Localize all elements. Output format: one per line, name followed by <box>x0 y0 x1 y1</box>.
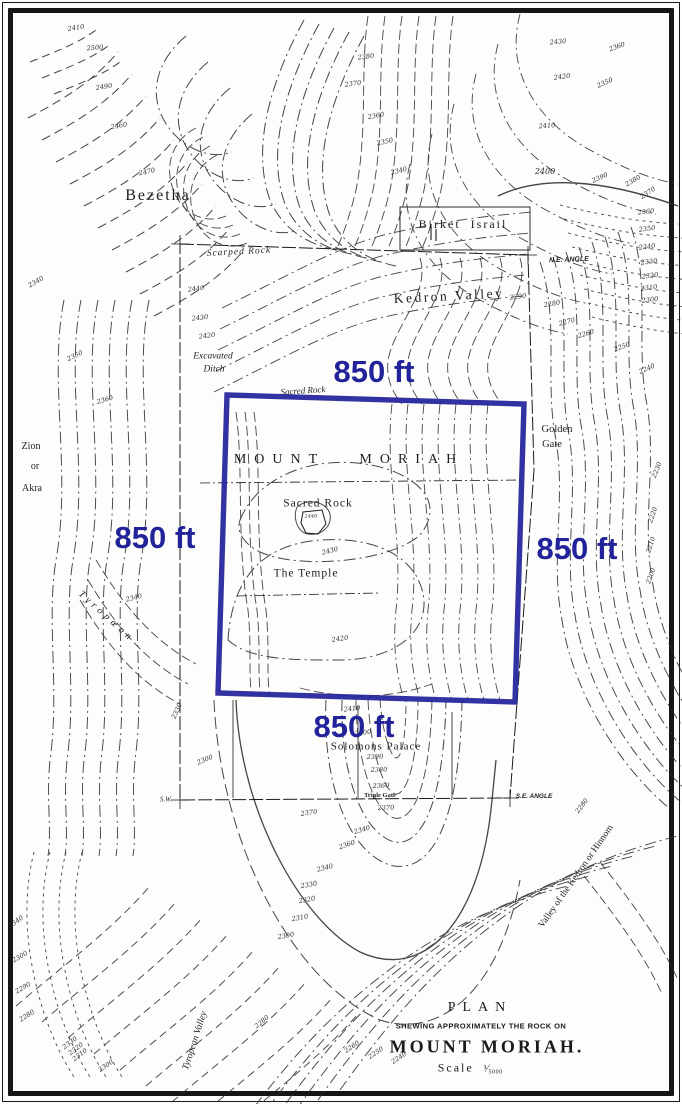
overlay-square <box>218 395 524 702</box>
map-page: BezethaBirket IsrailScarped RockN.E. ANG… <box>0 0 682 1104</box>
annotation-overlay <box>0 0 682 1104</box>
